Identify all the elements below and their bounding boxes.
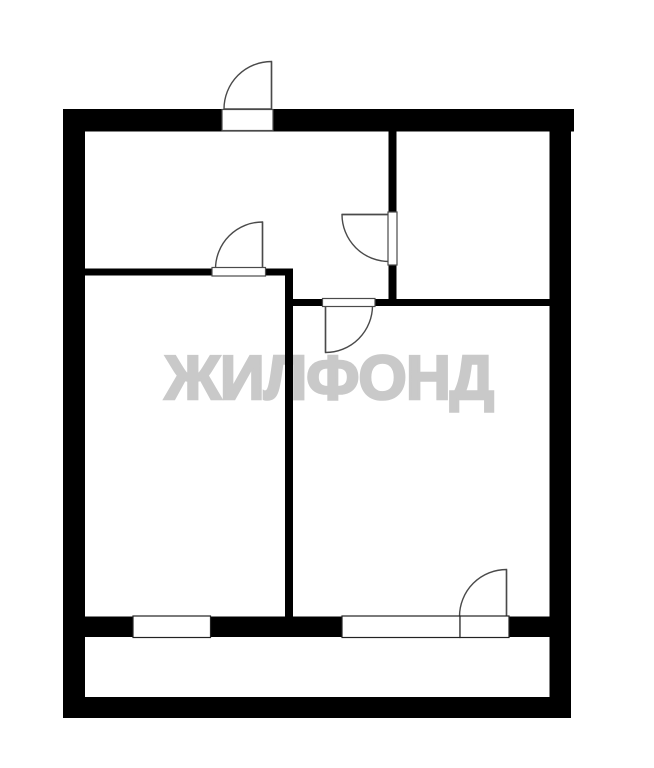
- svg-text:ЖИЛФОНД: ЖИЛФОНД: [164, 344, 494, 413]
